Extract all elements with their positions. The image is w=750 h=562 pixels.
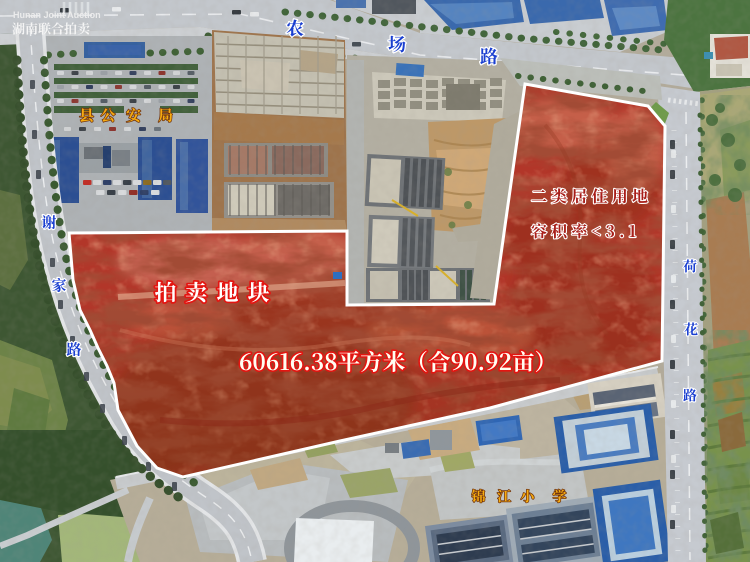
svg-text:Hunan Joint Auction: Hunan Joint Auction [13,10,101,20]
